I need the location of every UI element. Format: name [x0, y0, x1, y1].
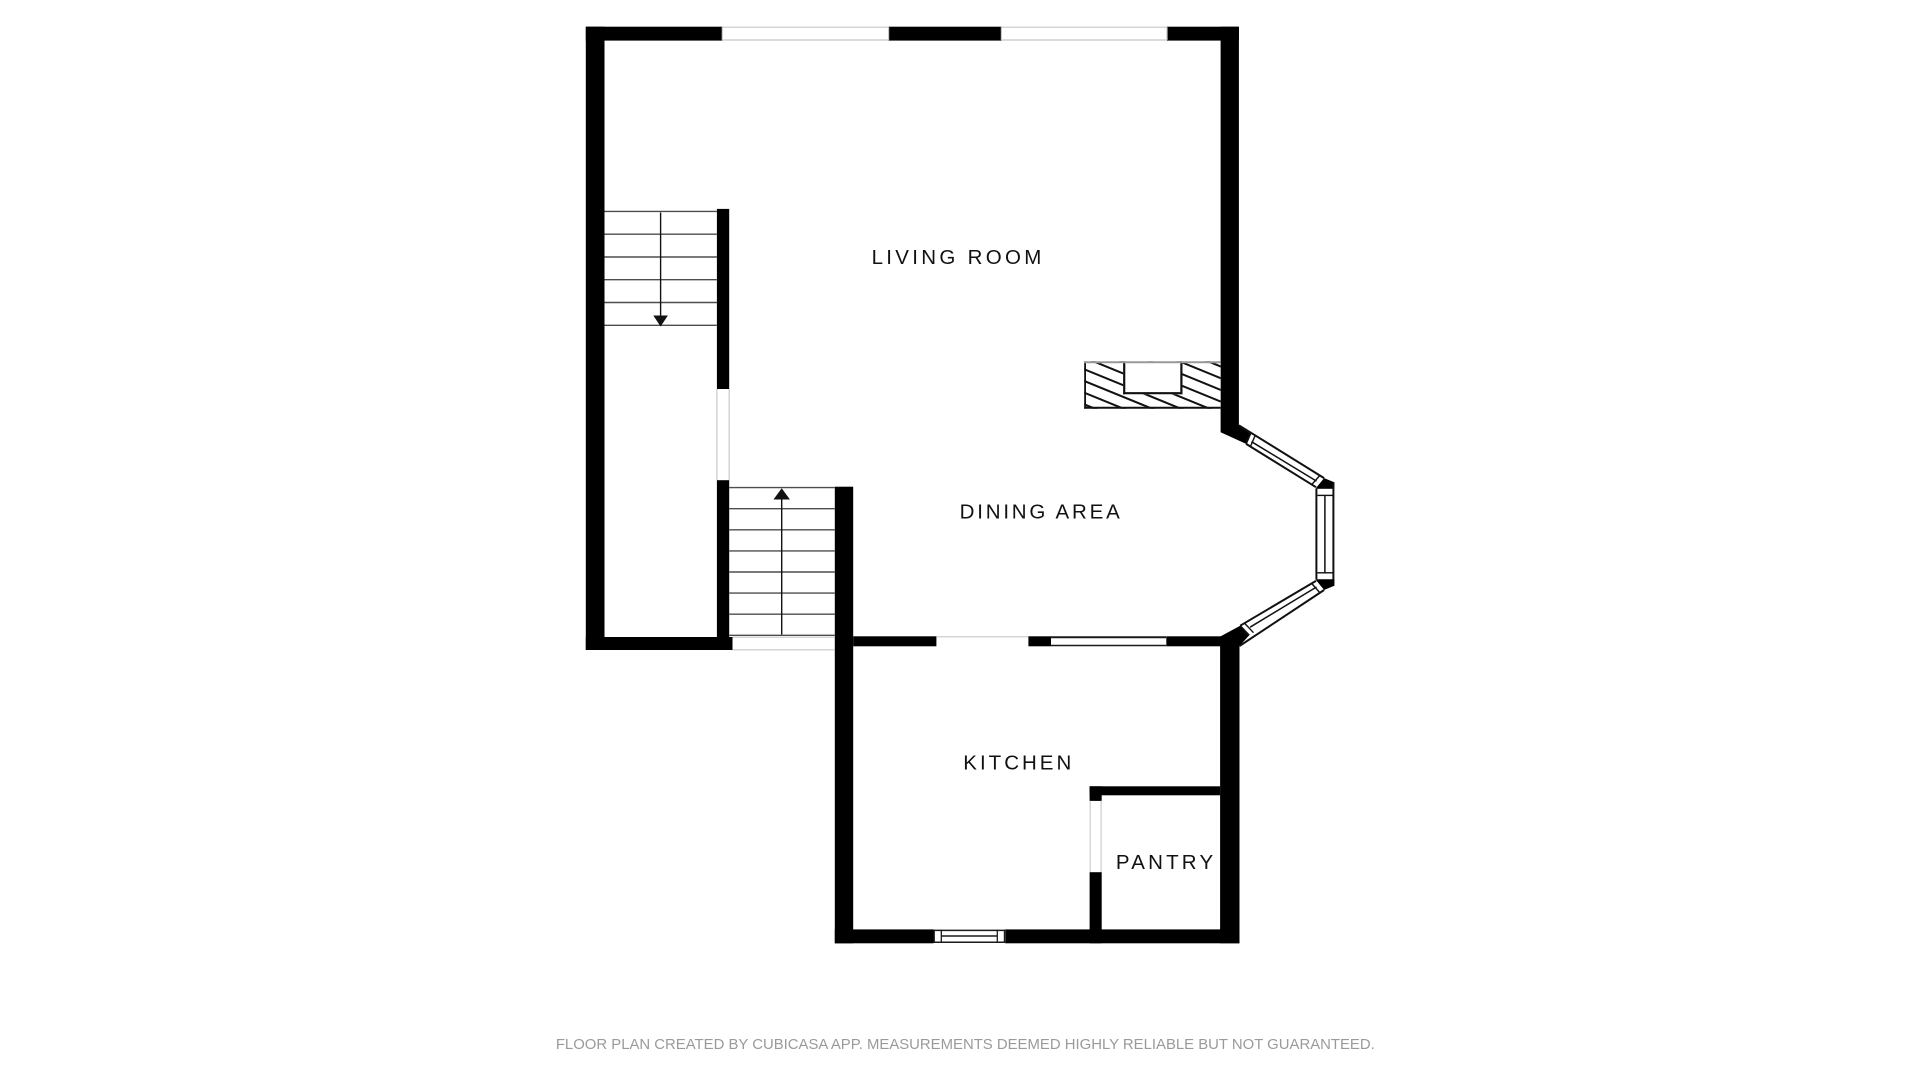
svg-text:FLOOR PLAN CREATED BY CUBICASA: FLOOR PLAN CREATED BY CUBICASA APP. MEAS…	[556, 1037, 1375, 1053]
svg-text:LIVING ROOM: LIVING ROOM	[872, 246, 1045, 269]
svg-text:PANTRY: PANTRY	[1116, 851, 1216, 874]
svg-text:DINING AREA: DINING AREA	[960, 500, 1123, 523]
svg-text:KITCHEN: KITCHEN	[963, 752, 1074, 775]
